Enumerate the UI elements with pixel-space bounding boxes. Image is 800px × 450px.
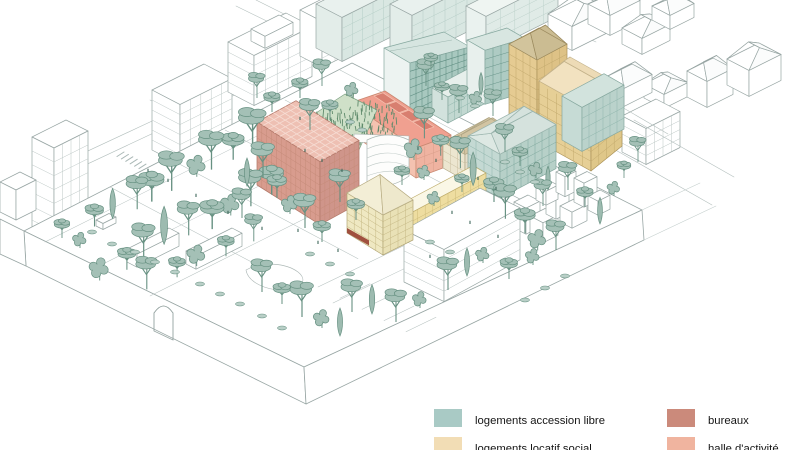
svg-text:logements accession libre: logements accession libre [475, 415, 605, 427]
svg-text:logements locatif social: logements locatif social [475, 443, 592, 450]
svg-text:bureaux: bureaux [708, 415, 749, 427]
svg-text:halle d'activité: halle d'activité [708, 443, 779, 450]
